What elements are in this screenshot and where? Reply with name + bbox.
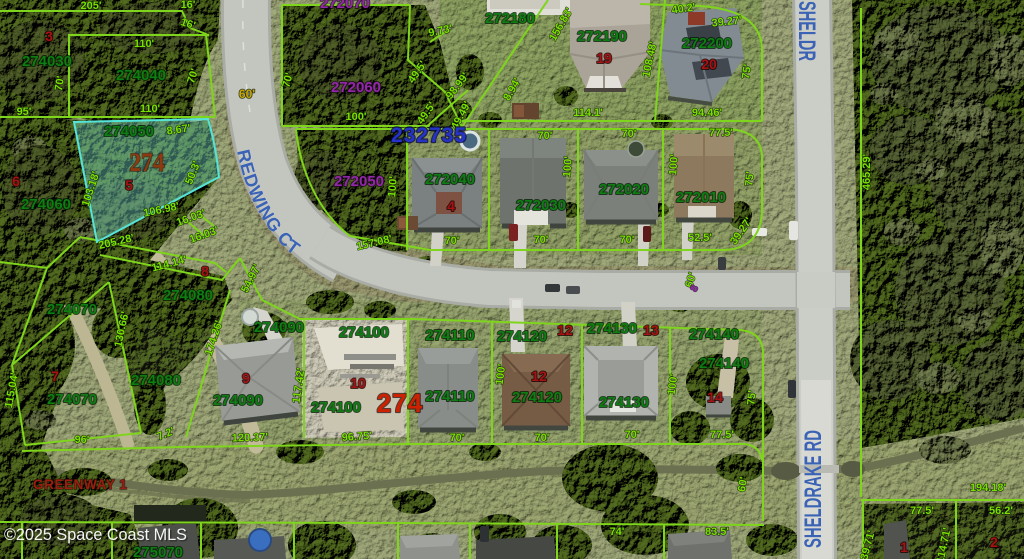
- svg-text:274130: 274130: [587, 320, 637, 337]
- svg-text:94.46': 94.46': [692, 107, 723, 119]
- svg-text:274110: 274110: [425, 388, 474, 405]
- svg-text:120.37': 120.37': [232, 431, 269, 444]
- svg-text:4: 4: [447, 198, 455, 214]
- svg-text:19: 19: [596, 50, 612, 66]
- svg-text:465.29': 465.29': [861, 153, 873, 190]
- svg-text:232735: 232735: [391, 124, 467, 147]
- svg-text:9: 9: [242, 370, 250, 386]
- svg-text:8: 8: [201, 263, 209, 279]
- svg-text:95': 95': [17, 106, 32, 118]
- svg-text:6: 6: [12, 173, 20, 189]
- svg-text:274070: 274070: [47, 301, 97, 318]
- svg-text:274120: 274120: [497, 328, 547, 345]
- svg-text:272070: 272070: [320, 0, 370, 12]
- svg-text:100': 100': [667, 153, 681, 175]
- svg-text:60': 60': [239, 87, 255, 101]
- svg-text:272180: 272180: [485, 10, 535, 27]
- svg-text:3: 3: [45, 28, 53, 44]
- svg-text:274070: 274070: [47, 391, 97, 408]
- svg-text:110': 110': [134, 38, 155, 50]
- svg-text:20: 20: [701, 56, 717, 72]
- svg-text:70': 70': [622, 128, 637, 140]
- svg-text:96': 96': [75, 434, 90, 446]
- svg-text:274110: 274110: [425, 327, 474, 344]
- svg-text:75': 75': [740, 63, 754, 80]
- svg-text:77.5': 77.5': [709, 127, 733, 139]
- svg-text:274090: 274090: [254, 319, 304, 336]
- svg-text:272040: 272040: [425, 171, 475, 188]
- svg-text:274060: 274060: [21, 196, 71, 213]
- svg-text:274120: 274120: [512, 389, 562, 406]
- svg-text:274100: 274100: [311, 399, 361, 416]
- svg-text:275070: 275070: [133, 544, 183, 559]
- svg-text:274080: 274080: [131, 372, 181, 389]
- svg-text:©2025 Space Coast MLS: ©2025 Space Coast MLS: [4, 526, 187, 544]
- svg-text:56.2': 56.2': [989, 505, 1013, 517]
- svg-text:7: 7: [51, 368, 59, 384]
- svg-text:274: 274: [377, 388, 423, 418]
- svg-text:GREENWAY 1: GREENWAY 1: [33, 477, 128, 492]
- svg-text:5: 5: [125, 177, 133, 193]
- svg-text:70': 70': [535, 432, 550, 444]
- svg-text:70': 70': [620, 234, 635, 246]
- svg-text:96.75': 96.75': [341, 430, 372, 444]
- svg-text:12: 12: [531, 368, 547, 384]
- svg-text:16': 16': [181, 0, 196, 11]
- svg-text:14: 14: [707, 389, 723, 405]
- svg-text:70': 70': [538, 130, 553, 142]
- svg-text:274090: 274090: [213, 392, 263, 409]
- svg-text:272010: 272010: [676, 189, 726, 206]
- svg-text:194.18': 194.18': [970, 482, 1007, 494]
- svg-text:100': 100': [346, 111, 367, 123]
- svg-text:272050: 272050: [334, 173, 384, 190]
- svg-text:75': 75': [745, 389, 758, 405]
- svg-text:SHELDRAKE RD: SHELDRAKE RD: [800, 430, 827, 548]
- svg-text:274100: 274100: [339, 324, 389, 341]
- svg-text:2: 2: [990, 534, 998, 550]
- svg-text:274130: 274130: [599, 394, 649, 411]
- svg-text:100': 100': [386, 175, 400, 197]
- svg-text:274140: 274140: [689, 326, 739, 343]
- svg-text:74': 74': [610, 526, 625, 538]
- svg-text:12: 12: [557, 322, 573, 338]
- svg-text:70': 70': [450, 432, 465, 444]
- svg-text:274030: 274030: [22, 53, 72, 70]
- svg-text:272190: 272190: [577, 28, 627, 45]
- svg-text:77.5': 77.5': [710, 429, 734, 441]
- svg-text:272060: 272060: [331, 79, 381, 96]
- svg-text:1: 1: [900, 539, 908, 555]
- svg-text:272020: 272020: [599, 181, 649, 198]
- svg-text:52.5': 52.5': [688, 232, 712, 244]
- svg-text:13: 13: [643, 322, 659, 338]
- svg-text:274040: 274040: [116, 67, 166, 84]
- svg-text:205': 205': [81, 0, 102, 12]
- svg-text:70': 70': [625, 429, 640, 441]
- svg-text:100': 100': [561, 155, 575, 177]
- svg-text:10: 10: [350, 375, 366, 391]
- svg-text:274050: 274050: [104, 123, 154, 140]
- svg-text:83.5': 83.5': [705, 526, 729, 538]
- svg-text:70': 70': [534, 234, 549, 246]
- svg-text:75': 75': [743, 170, 756, 186]
- svg-text:274140: 274140: [699, 355, 749, 372]
- svg-text:114.1': 114.1': [573, 107, 603, 119]
- svg-text:274080: 274080: [163, 287, 213, 304]
- svg-text:272200: 272200: [682, 35, 732, 52]
- svg-text:272030: 272030: [516, 197, 566, 214]
- svg-text:SHELDR: SHELDR: [793, 1, 820, 61]
- svg-text:110': 110': [140, 103, 161, 115]
- svg-text:70': 70': [445, 235, 460, 247]
- svg-text:77.5': 77.5': [910, 505, 934, 517]
- svg-text:274: 274: [130, 148, 165, 177]
